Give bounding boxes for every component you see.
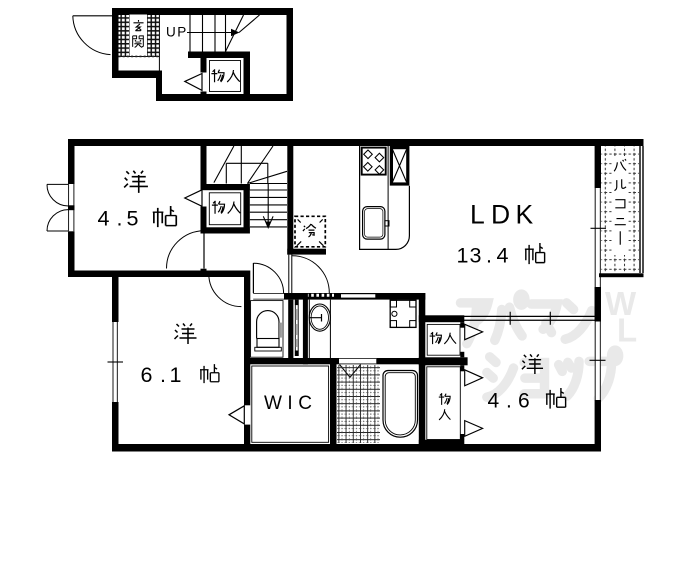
svg-text:3: 3 <box>470 244 482 268</box>
svg-text:4: 4 <box>497 244 509 268</box>
svg-text:.: . <box>506 390 512 413</box>
svg-text:K: K <box>516 200 534 230</box>
svg-text:.: . <box>486 244 492 268</box>
svg-text:4: 4 <box>488 390 500 413</box>
svg-text:.: . <box>160 363 166 387</box>
svg-text:D: D <box>491 200 510 230</box>
svg-text:.: . <box>117 207 123 231</box>
svg-text:L: L <box>617 312 637 349</box>
svg-text:WIC: WIC <box>264 393 317 414</box>
svg-text:L: L <box>470 200 485 230</box>
svg-text:5: 5 <box>127 207 139 231</box>
svg-text:4: 4 <box>98 207 110 231</box>
svg-text:1: 1 <box>170 363 182 387</box>
svg-text:1: 1 <box>457 244 469 268</box>
svg-text:UP: UP <box>166 25 188 40</box>
svg-text:6: 6 <box>141 363 153 387</box>
svg-text:6: 6 <box>518 390 530 413</box>
